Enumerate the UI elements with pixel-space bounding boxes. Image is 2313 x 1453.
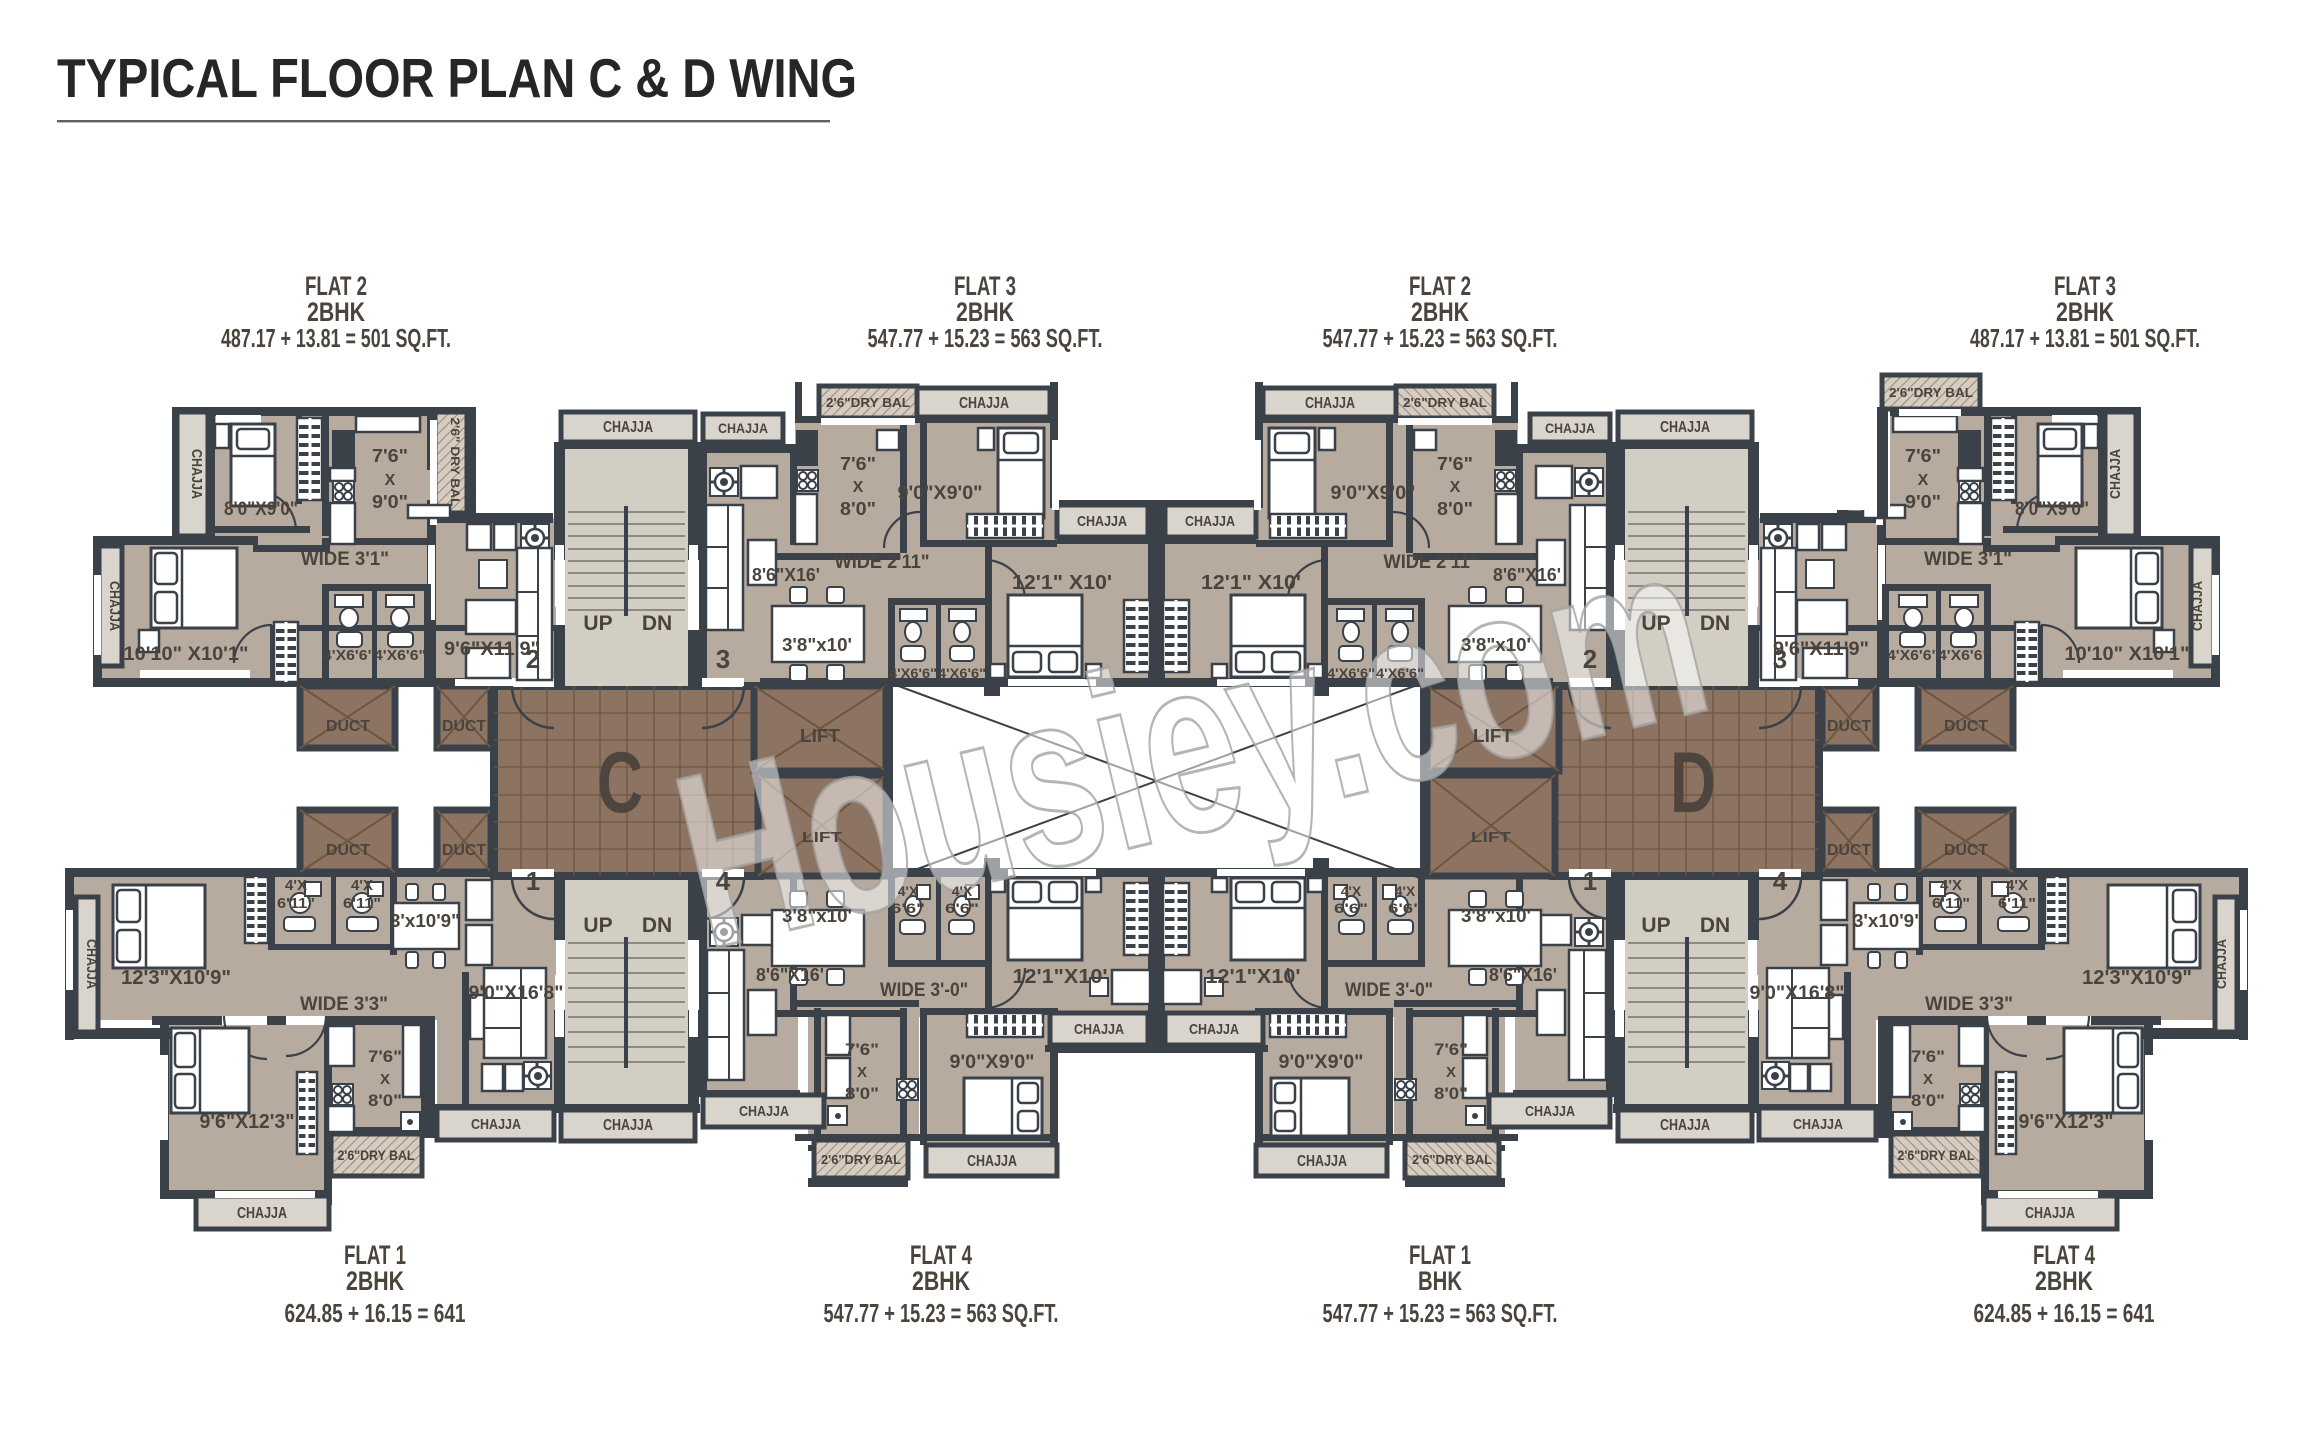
svg-text:8'0": 8'0" — [845, 1084, 879, 1103]
svg-text:CHAJJA: CHAJJA — [1297, 1153, 1347, 1170]
svg-text:X: X — [853, 479, 864, 496]
svg-text:CHAJJA: CHAJJA — [1189, 1021, 1239, 1038]
svg-text:X: X — [380, 1071, 390, 1088]
svg-text:2BHK: 2BHK — [912, 1266, 970, 1296]
svg-text:DUCT: DUCT — [326, 842, 370, 859]
svg-text:9'0"X9'0": 9'0"X9'0" — [1331, 483, 1416, 504]
svg-text:LIFT: LIFT — [1471, 829, 1511, 846]
svg-text:DUCT: DUCT — [1944, 718, 1988, 735]
svg-text:9'6"X12'3": 9'6"X12'3" — [200, 1111, 295, 1133]
svg-text:CHAJJA: CHAJJA — [1660, 419, 1710, 436]
svg-text:WIDE 3'-0": WIDE 3'-0" — [1345, 980, 1433, 1001]
svg-text:8'6"X16': 8'6"X16' — [1489, 965, 1557, 985]
svg-text:2'6"DRY BAL: 2'6"DRY BAL — [1403, 395, 1487, 410]
svg-text:1: 1 — [1583, 866, 1597, 896]
svg-text:487.17 + 13.81 = 501 SQ.FT.: 487.17 + 13.81 = 501 SQ.FT. — [221, 323, 451, 353]
svg-text:6'11": 6'11" — [1998, 895, 2036, 912]
svg-text:4'X6'6": 4'X6'6" — [374, 647, 426, 664]
svg-text:3'8"x10': 3'8"x10' — [782, 635, 852, 655]
svg-text:CHAJJA: CHAJJA — [718, 420, 768, 436]
svg-text:DN: DN — [642, 612, 672, 635]
svg-text:BHK: BHK — [1418, 1266, 1462, 1296]
svg-text:2: 2 — [526, 644, 540, 674]
svg-text:4'X6'6": 4'X6'6" — [1887, 647, 1939, 664]
svg-text:6'11": 6'11" — [343, 895, 381, 912]
svg-text:7'6": 7'6" — [840, 454, 876, 474]
svg-text:CHAJJA: CHAJJA — [237, 1205, 287, 1222]
svg-text:12'1" X10': 12'1" X10' — [1201, 572, 1301, 594]
svg-text:8'6"X16': 8'6"X16' — [752, 565, 820, 585]
svg-text:LIFT: LIFT — [1473, 726, 1513, 746]
svg-text:3'8"x10': 3'8"x10' — [782, 906, 852, 926]
svg-text:2'6"DRY BAL: 2'6"DRY BAL — [1898, 1147, 1975, 1163]
svg-text:DN: DN — [1700, 612, 1730, 635]
svg-text:9'0"X16'8": 9'0"X16'8" — [1750, 983, 1845, 1004]
svg-text:2'6"DRY BAL: 2'6"DRY BAL — [338, 1147, 415, 1163]
svg-text:3: 3 — [716, 644, 730, 674]
svg-text:CHAJJA: CHAJJA — [1305, 395, 1355, 412]
svg-text:X: X — [1450, 479, 1461, 496]
svg-text:8'6"X16': 8'6"X16' — [1493, 565, 1561, 585]
svg-text:WIDE 3'1": WIDE 3'1" — [1924, 549, 2012, 570]
svg-text:9'0": 9'0" — [1905, 492, 1941, 512]
svg-text:547.77 + 15.23 = 563 SQ.FT.: 547.77 + 15.23 = 563 SQ.FT. — [868, 323, 1103, 353]
svg-text:8'0": 8'0" — [1437, 499, 1473, 519]
svg-text:DN: DN — [642, 914, 672, 937]
svg-text:DUCT: DUCT — [1827, 842, 1871, 859]
svg-text:7'6": 7'6" — [1905, 446, 1941, 466]
svg-text:CHAJJA: CHAJJA — [603, 419, 653, 436]
svg-text:4'X6'6": 4'X6'6" — [889, 665, 937, 681]
svg-text:12'3"X10'9": 12'3"X10'9" — [2082, 967, 2192, 989]
svg-text:CHAJJA: CHAJJA — [1660, 1117, 1710, 1134]
svg-text:2: 2 — [1583, 644, 1597, 674]
svg-text:CHAJJA: CHAJJA — [1185, 513, 1235, 530]
svg-text:3'x10'9": 3'x10'9" — [1853, 911, 1923, 931]
svg-text:4'X: 4'X — [351, 877, 373, 894]
svg-text:3'8"x10': 3'8"x10' — [1461, 906, 1531, 926]
svg-text:4'X6'6": 4'X6'6" — [1938, 647, 1990, 664]
svg-text:3: 3 — [1773, 644, 1787, 674]
svg-text:CHAJJA: CHAJJA — [1077, 513, 1127, 530]
svg-text:TYPICAL FLOOR PLAN C & D WING: TYPICAL FLOOR PLAN C & D WING — [57, 47, 857, 109]
svg-text:D: D — [1670, 735, 1716, 831]
svg-text:547.77 + 15.23 = 563 SQ.FT.: 547.77 + 15.23 = 563 SQ.FT. — [1323, 323, 1558, 353]
svg-text:4'X: 4'X — [1341, 883, 1362, 899]
svg-text:9'0"X9'0": 9'0"X9'0" — [1279, 1052, 1364, 1073]
svg-text:547.77 + 15.23 = 563 SQ.FT.: 547.77 + 15.23 = 563 SQ.FT. — [824, 1298, 1059, 1328]
svg-text:7'6": 7'6" — [1911, 1047, 1945, 1066]
svg-text:7'6": 7'6" — [368, 1047, 402, 1066]
svg-text:12'1"X10': 12'1"X10' — [1013, 966, 1108, 988]
svg-text:9'0"X16'8": 9'0"X16'8" — [469, 983, 564, 1004]
svg-text:4: 4 — [1773, 866, 1788, 896]
svg-text:LIFT: LIFT — [802, 829, 842, 846]
svg-text:6'11": 6'11" — [277, 895, 315, 912]
svg-text:8'6"X16': 8'6"X16' — [756, 965, 824, 985]
svg-text:8'0": 8'0" — [368, 1091, 402, 1110]
svg-text:10'10" X10'1": 10'10" X10'1" — [2065, 644, 2190, 665]
svg-text:WIDE 2'11": WIDE 2'11" — [835, 552, 930, 573]
svg-text:6'6": 6'6" — [1388, 900, 1422, 916]
svg-text:12'1"X10': 12'1"X10' — [1206, 966, 1301, 988]
svg-text:CHAJJA: CHAJJA — [188, 449, 205, 499]
svg-text:CHAJJA: CHAJJA — [603, 1117, 653, 1134]
svg-text:7'6": 7'6" — [1434, 1040, 1468, 1059]
svg-text:WIDE 3'1": WIDE 3'1" — [301, 549, 389, 570]
svg-text:6'6": 6'6" — [891, 900, 925, 916]
svg-text:X: X — [1923, 1071, 1933, 1088]
svg-text:CHAJJA: CHAJJA — [739, 1103, 789, 1120]
svg-text:2'6"DRY BAL: 2'6"DRY BAL — [821, 1152, 901, 1167]
svg-text:CHAJJA: CHAJJA — [1793, 1116, 1843, 1133]
svg-text:DUCT: DUCT — [326, 718, 370, 735]
svg-text:C: C — [597, 735, 643, 831]
svg-text:CHAJJA: CHAJJA — [1545, 420, 1595, 436]
svg-text:CHAJJA: CHAJJA — [2025, 1205, 2075, 1222]
svg-text:8'0": 8'0" — [1434, 1084, 1468, 1103]
svg-text:4'X6'6": 4'X6'6" — [938, 665, 986, 681]
svg-text:2BHK: 2BHK — [346, 1266, 404, 1296]
svg-text:624.85 + 16.15 = 641: 624.85 + 16.15 = 641 — [285, 1298, 466, 1328]
svg-text:DN: DN — [1700, 914, 1730, 937]
svg-text:CHAJJA: CHAJJA — [84, 939, 100, 989]
svg-text:CHAJJA: CHAJJA — [959, 395, 1009, 412]
svg-text:10'10" X10'1": 10'10" X10'1" — [124, 644, 249, 665]
svg-text:6'6": 6'6" — [945, 900, 979, 916]
svg-text:2'6" DRY BAL: 2'6" DRY BAL — [448, 418, 462, 507]
svg-text:8'0"X9'0": 8'0"X9'0" — [224, 499, 298, 520]
svg-text:UP: UP — [1641, 914, 1670, 937]
svg-text:9'6"X12'3": 9'6"X12'3" — [2019, 1111, 2114, 1133]
svg-text:2'6"DRY BAL: 2'6"DRY BAL — [1412, 1152, 1492, 1167]
svg-text:9'6"X11'9": 9'6"X11'9" — [1773, 639, 1869, 660]
svg-text:DUCT: DUCT — [1827, 718, 1871, 735]
svg-text:2'6"DRY BAL: 2'6"DRY BAL — [826, 395, 910, 410]
svg-text:8'0": 8'0" — [840, 499, 876, 519]
svg-text:WIDE 2'11": WIDE 2'11" — [1384, 552, 1479, 573]
svg-text:CHAJJA: CHAJJA — [1074, 1021, 1124, 1038]
svg-text:4'X: 4'X — [1940, 877, 1962, 894]
svg-text:6'11": 6'11" — [1932, 895, 1970, 912]
svg-text:DUCT: DUCT — [442, 718, 486, 735]
svg-text:4: 4 — [716, 866, 731, 896]
svg-text:DUCT: DUCT — [442, 842, 486, 859]
svg-text:12'3"X10'9": 12'3"X10'9" — [121, 967, 231, 989]
svg-text:7'6": 7'6" — [372, 446, 408, 466]
svg-text:CHAJJA: CHAJJA — [2213, 939, 2229, 989]
svg-text:CHAJJA: CHAJJA — [967, 1153, 1017, 1170]
svg-text:WIDE 3'-0": WIDE 3'-0" — [880, 980, 968, 1001]
svg-text:487.17 + 13.81 = 501 SQ.FT.: 487.17 + 13.81 = 501 SQ.FT. — [1970, 323, 2200, 353]
svg-text:CHAJJA: CHAJJA — [1525, 1103, 1575, 1120]
svg-text:WIDE 3'3": WIDE 3'3" — [300, 994, 388, 1015]
svg-text:X: X — [1918, 472, 1929, 489]
svg-text:UP: UP — [1641, 612, 1670, 635]
svg-text:UP: UP — [583, 914, 612, 937]
svg-text:8'0"X9'0": 8'0"X9'0" — [2015, 499, 2089, 520]
svg-text:9'0"X9'0": 9'0"X9'0" — [950, 1052, 1035, 1073]
svg-text:4'X6'6": 4'X6'6" — [1376, 665, 1424, 681]
svg-text:3'8"x10': 3'8"x10' — [1461, 635, 1531, 655]
svg-text:1: 1 — [526, 866, 540, 896]
svg-text:9'0"X9'0": 9'0"X9'0" — [898, 483, 983, 504]
svg-text:8'0": 8'0" — [1911, 1091, 1945, 1110]
svg-text:4'X: 4'X — [1395, 883, 1416, 899]
svg-text:7'6": 7'6" — [1437, 454, 1473, 474]
svg-text:LIFT: LIFT — [800, 726, 840, 746]
svg-text:CHAJJA: CHAJJA — [2189, 581, 2205, 631]
svg-text:624.85 + 16.15 = 641: 624.85 + 16.15 = 641 — [1974, 1298, 2155, 1328]
svg-text:4'X: 4'X — [285, 877, 307, 894]
svg-text:DUCT: DUCT — [1944, 842, 1988, 859]
svg-text:3'x10'9": 3'x10'9" — [390, 911, 460, 931]
svg-text:12'1" X10': 12'1" X10' — [1012, 572, 1112, 594]
svg-text:4'X: 4'X — [2006, 877, 2028, 894]
svg-text:X: X — [1446, 1064, 1456, 1081]
svg-text:2'6"DRY BAL: 2'6"DRY BAL — [1889, 385, 1973, 400]
svg-text:9'0": 9'0" — [372, 492, 408, 512]
svg-text:X: X — [385, 472, 396, 489]
svg-text:4'X6'6": 4'X6'6" — [323, 647, 375, 664]
svg-text:547.77 + 15.23 = 563 SQ.FT.: 547.77 + 15.23 = 563 SQ.FT. — [1323, 1298, 1558, 1328]
svg-text:4'X: 4'X — [952, 883, 973, 899]
svg-text:7'6": 7'6" — [845, 1040, 879, 1059]
svg-text:CHAJJA: CHAJJA — [107, 581, 123, 631]
svg-text:2BHK: 2BHK — [2035, 1266, 2093, 1296]
svg-text:UP: UP — [583, 612, 612, 635]
svg-text:WIDE 3'3": WIDE 3'3" — [1925, 994, 2013, 1015]
svg-text:CHAJJA: CHAJJA — [471, 1116, 521, 1133]
svg-text:4'X: 4'X — [898, 883, 919, 899]
svg-text:6'6": 6'6" — [1334, 900, 1368, 916]
svg-text:X: X — [857, 1064, 867, 1081]
svg-text:CHAJJA: CHAJJA — [2107, 449, 2124, 499]
svg-text:4'X6'6": 4'X6'6" — [1327, 665, 1375, 681]
